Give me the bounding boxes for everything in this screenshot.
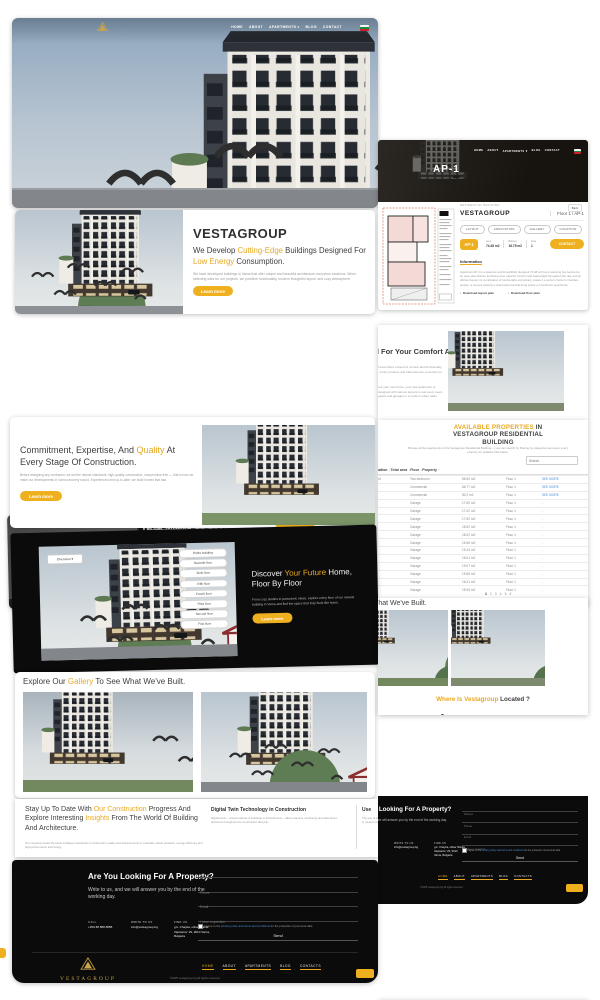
article-body: Digital twins – virtual replicas of buil… — [211, 816, 349, 824]
table-row[interactable]: 2 Shop Commercial 66.77 m2 Floor 1 SEE M… — [378, 483, 588, 491]
bulgarian-flag-icon[interactable] — [360, 25, 369, 31]
column-header[interactable]: Designation↕ — [378, 468, 391, 472]
footer-subtext: Write to us, and we will answer you by t… — [88, 887, 210, 902]
page-number[interactable]: 5 — [505, 592, 507, 596]
page-number[interactable]: 4 — [500, 592, 502, 596]
pin-icon — [441, 714, 444, 715]
footer-nav: HOMEABOUTAPARTMENTSBLOGCONTACTS — [438, 875, 532, 880]
hero-nav: HOMEABOUTAPARTMENTSBLOGCONTACT — [231, 25, 342, 29]
floors-building-image: Overview ▾ Entire buildingSeventh floorS… — [39, 542, 238, 661]
floor-pill[interactable]: Entire building — [179, 548, 227, 558]
table-body: 1 Apartment Two-bedroom 88.50 m2 Floor 1… — [378, 475, 588, 593]
download-icon: ↓ — [508, 291, 510, 295]
floor-pill[interactable]: Fifth floor — [180, 579, 228, 589]
article[interactable]: Digital Twin Technology in Construction … — [211, 807, 349, 824]
properties-subtitle: Browse all the apartments in the Vestagr… — [408, 446, 568, 455]
screenshot-collage: HOMEABOUTAPARTMENTSBLOGCONTACT HOMEABOUT… — [0, 0, 600, 1000]
tab[interactable]: GALLERY — [524, 225, 551, 234]
footer-logo-icon — [79, 957, 97, 970]
article[interactable]: Use The use of innovative materials in m… — [362, 807, 378, 824]
stray-accent — [0, 948, 6, 958]
intro-section: VESTAGROUP We Develop Cutting-Edge Build… — [15, 210, 375, 314]
table-row[interactable]: 6 Parking Garage 17.52 m2 Floor 1 - — [378, 514, 588, 522]
comfort-paragraph: Here, when you choose your own home, you… — [378, 385, 443, 399]
learn-more-button[interactable]: Learn more — [193, 286, 233, 296]
apartment-header: HOMEABOUTAPARTMENTSBLOGCONTACT AP-1 — [378, 140, 588, 202]
floor-plan[interactable] — [381, 206, 457, 306]
comfort-paragraph: Every apartment and level offers a blend… — [378, 365, 443, 379]
table-row[interactable]: 11 Parking Garage 16.61 m2 Floor 1 - — [378, 554, 588, 562]
tab[interactable]: LOCATION — [554, 225, 583, 234]
sort-icon[interactable]: ↕ — [438, 468, 440, 472]
footer-section: Are You Looking For A Property? Write to… — [12, 860, 378, 983]
stat: Balcony 16.75 m2 — [503, 240, 525, 248]
footer-nav-item[interactable]: HOME — [202, 964, 214, 970]
footer-heading: Are You Looking For A Property? — [88, 872, 214, 881]
apartment-page-nav: HOMEABOUTAPARTMENTSBLOGCONTACT — [474, 149, 560, 153]
gallery-image[interactable] — [378, 610, 448, 686]
contact-form: I agree to the privacy policy and terms … — [198, 866, 358, 941]
nav-item[interactable]: CONTACT — [545, 149, 560, 153]
table-row[interactable]: 9 Parking Garage 15.66 m2 Floor 1 - — [378, 538, 588, 546]
footer-heading: Are You Looking For A Property? — [378, 806, 451, 813]
floor-label: Floor 1 / AP-1 — [550, 211, 584, 216]
column-header[interactable]: Property↕ — [422, 468, 440, 472]
floor-pill[interactable]: Third floor — [180, 599, 228, 609]
table-row[interactable]: 1 Apartment Two-bedroom 88.50 m2 Floor 1… — [378, 475, 588, 483]
comfort-building-image — [448, 331, 564, 411]
nav-item[interactable]: HOME — [231, 25, 243, 29]
located-heading: Where Is Vestagroup Located ? — [388, 696, 578, 703]
comfort-section: Created For Your Comfort And Every apart… — [378, 325, 588, 420]
article-title: Use — [362, 807, 378, 813]
news-body: Our company tracks the latest intelligen… — [25, 841, 205, 849]
form-field[interactable] — [462, 837, 578, 847]
floor-selector: Entire buildingSeventh floorSixth floorF… — [179, 548, 229, 631]
floating-action-button[interactable] — [356, 969, 374, 978]
gallery-heading-fragment: To See What We've Built. — [378, 600, 427, 607]
apartment-badge: AP-1 — [460, 239, 478, 250]
properties-table: No↕Type↕Designation↕Total area↕Floor↕Pro… — [378, 466, 588, 593]
table-row[interactable]: 5 Parking Garage 17.02 m2 Floor 1 - — [378, 507, 588, 515]
small-label: RESIDENTIAL BUILDING — [460, 204, 584, 207]
learn-more-button[interactable]: Learn more — [20, 491, 62, 501]
quality-section: Commitment, Expertise, And Quality At Ev… — [10, 417, 375, 528]
table-row[interactable]: 13 Parking Garage 15.68 m2 Floor 1 - — [378, 570, 588, 578]
nav-item[interactable]: HOME — [474, 149, 483, 153]
apartment-info-panel: RESIDENTIAL BUILDING Back VESTAGROUP Flo… — [460, 204, 584, 308]
properties-title: AVAILABLE PROPERTIES IN VESTAGROUP RESID… — [418, 424, 578, 446]
form-field[interactable] — [462, 825, 578, 835]
floors-body: From cozy studios to panoramic views, ex… — [252, 595, 364, 607]
brand-title: VESTAGROUP — [460, 210, 510, 217]
footer-subtext: Write to us, and we will answer you by t… — [378, 818, 464, 823]
tab[interactable]: ANNOTATION — [488, 225, 521, 234]
download-icon: ↓ — [460, 291, 462, 295]
floating-action-button[interactable] — [566, 884, 583, 892]
footer-nav-item[interactable]: CONTACTS — [514, 875, 532, 880]
table-row[interactable]: 8 Parking Garage 18.02 m2 Floor 1 - — [378, 530, 588, 538]
nav-item[interactable]: CONTACT — [323, 25, 342, 29]
send-button[interactable]: Send — [198, 933, 358, 941]
form-field[interactable] — [462, 814, 578, 824]
footer-nav-item[interactable]: BLOG — [499, 875, 508, 880]
gallery-section: Explore Our Gallery To See What We've Bu… — [15, 672, 375, 798]
table-row[interactable]: 10 Parking Garage 15.43 m2 Floor 1 - — [378, 546, 588, 554]
bulgarian-flag-icon[interactable] — [574, 149, 581, 154]
form-field[interactable] — [198, 881, 358, 893]
quality-heading: Commitment, Expertise, And Quality At Ev… — [20, 445, 198, 468]
floor-plan-drawing — [381, 206, 457, 306]
floors-section: Overview ▾ Entire buildingSeventh floorS… — [10, 525, 379, 674]
gallery-image[interactable] — [451, 610, 545, 686]
floor-pill[interactable]: Fourth floor — [180, 589, 228, 599]
floors-heading: Discover Your Future Home, Floor By Floo… — [251, 567, 367, 591]
nav-item[interactable]: BLOG — [532, 149, 541, 153]
contact-form: I agree to the privacy policy and terms … — [462, 802, 578, 862]
page-number[interactable]: 2 — [490, 592, 492, 596]
page-number[interactable]: 6 — [509, 592, 511, 596]
table-row[interactable]: 7 Parking Garage 18.52 m2 Floor 1 - — [378, 522, 588, 530]
contact-column: CALL +359 88 888 8888 — [88, 920, 124, 939]
intro-title: VESTAGROUP — [193, 226, 287, 241]
consent-checkbox[interactable] — [462, 848, 467, 853]
learn-more-button[interactable]: Learn more — [252, 613, 292, 624]
intro-building-image — [15, 210, 183, 314]
gallery-image[interactable] — [23, 692, 193, 792]
search-input[interactable] — [526, 456, 578, 465]
apartment-stats: Area 74.48 m2 Balcony 16.75 m2 Floor 1 — [482, 240, 540, 248]
nav-item[interactable]: APARTMENTS — [269, 25, 299, 29]
brand-logo-icon[interactable] — [96, 21, 109, 32]
intro-body: We have developed buildings in Varna tha… — [193, 272, 369, 282]
footer-nav-item[interactable]: HOME — [438, 875, 448, 880]
gallery-heading: Explore Our Gallery To See What We've Bu… — [23, 677, 185, 686]
footer-nav-item[interactable]: CONTACTS — [300, 964, 321, 970]
table-row[interactable]: 3 Shop Commercial 80.2 m2 Floor 1 SEE MO… — [378, 491, 588, 499]
apartment-title: AP-1 — [433, 164, 460, 175]
address-row: g.k. Chayka, ulitsa 'Nikola Vaptsarov' 2… — [388, 707, 578, 715]
nav-item[interactable]: ABOUT — [249, 25, 263, 29]
table-row[interactable]: 12 Parking Garage 15.07 m2 Floor 1 - — [378, 562, 588, 570]
stat: Area 74.48 m2 — [482, 240, 503, 248]
copyright: ©2025 vestagroup.bg All rights reserved. — [420, 886, 463, 889]
intro-subtitle: We Develop Cutting-Edge Buildings Design… — [193, 246, 369, 267]
form-fields — [462, 802, 578, 846]
consent-checkbox[interactable] — [198, 924, 203, 929]
footer-nav-item[interactable]: APARTMENTS — [471, 875, 493, 880]
floor-pill[interactable]: Seventh floor — [179, 558, 227, 568]
contact-column: WRITE TO US info@vestagroup.bg — [394, 842, 426, 858]
gallery-image[interactable] — [201, 692, 367, 792]
footer-section-right: Are You Looking For A Property? Write to… — [378, 796, 588, 904]
footer-nav-item[interactable]: ABOUT — [223, 964, 236, 970]
floor-pill[interactable]: First floor — [181, 619, 229, 629]
hero-section: HOMEABOUTAPARTMENTSBLOGCONTACT — [12, 18, 378, 208]
divider — [356, 805, 357, 849]
form-field[interactable] — [462, 802, 578, 812]
footer-nav-item[interactable]: ABOUT — [454, 875, 465, 880]
nav-item[interactable]: ABOUT — [487, 149, 498, 153]
form-field[interactable] — [198, 866, 358, 878]
quality-body: Before assigning any contractor, we set … — [20, 473, 196, 483]
floor-pill[interactable]: Second floor — [180, 609, 228, 619]
nav-item[interactable]: APARTMENTS — [503, 149, 528, 153]
tab[interactable]: LAYOUT — [460, 225, 485, 234]
send-button[interactable]: Send — [462, 856, 578, 863]
quality-building-image — [202, 425, 375, 525]
page-number[interactable]: 3 — [495, 592, 497, 596]
footer-nav-item[interactable]: BLOG — [280, 964, 291, 970]
footer-contacts: CALL +359 88 888 8888 WRITE TO US info@v… — [88, 920, 210, 939]
view-dropdown[interactable]: Overview ▾ — [47, 554, 83, 565]
footer-nav-item[interactable]: APARTMENTS — [245, 964, 271, 970]
apartment-tabs: LAYOUTANNOTATIONGALLERYLOCATION — [460, 225, 584, 234]
form-field[interactable] — [198, 910, 358, 922]
news-heading: Stay Up To Date With Our Construction Pr… — [25, 805, 205, 833]
page-number[interactable]: 1 — [485, 592, 487, 596]
floor-pill[interactable]: Sixth floor — [179, 569, 227, 579]
download-link[interactable]: ↓Download floor plan — [508, 291, 540, 295]
contact-column: WRITE TO US info@vestagroup.bg — [131, 920, 167, 939]
form-fields — [198, 866, 358, 922]
hero-building-illustration — [12, 18, 378, 208]
article-body: The use of innovative materials in moder… — [362, 816, 378, 824]
apartment-detail-page: HOMEABOUTAPARTMENTSBLOGCONTACT AP-1 — [378, 140, 588, 310]
footer-nav: HOMEABOUTAPARTMENTSBLOGCONTACTS — [202, 964, 321, 970]
privacy-link[interactable]: privacy policy and terms and conditions — [221, 924, 270, 928]
footer-contacts: CALL +359 88 888 8888 WRITE TO US info@v… — [378, 842, 466, 858]
hero-nav-overlay — [12, 18, 378, 44]
copyright: ©2025 vestagroup.bg All rights reserved. — [12, 976, 378, 980]
contact-button[interactable]: CONTACT — [550, 239, 584, 249]
properties-section: AVAILABLE PROPERTIES IN VESTAGROUP RESID… — [378, 420, 588, 606]
column-header[interactable]: Floor↕ — [410, 468, 422, 472]
built-located-section: To See What We've Built. Where Is Vestag… — [378, 598, 588, 715]
nav-item[interactable]: BLOG — [305, 25, 316, 29]
privacy-link[interactable]: privacy policy and terms and conditions — [482, 849, 524, 852]
stat: Floor 1 — [526, 240, 540, 248]
article-title: Digital Twin Technology in Construction — [211, 807, 349, 813]
information-heading: Information — [460, 259, 482, 266]
information-text: Apartment AP-1 is a spacious and thought… — [460, 270, 582, 287]
table-row[interactable]: 4 Parking Garage 17.60 m2 Floor 1 - — [378, 499, 588, 507]
back-button[interactable]: Back — [568, 204, 582, 212]
contact-column: CALL +359 88 888 8888 — [378, 842, 386, 858]
news-section: Stay Up To Date With Our Construction Pr… — [15, 799, 378, 857]
table-header-row: No↕Type↕Designation↕Total area↕Floor↕Pro… — [378, 466, 588, 475]
download-link[interactable]: ↓Download layout plan — [460, 291, 494, 295]
form-field[interactable] — [198, 895, 358, 907]
column-header[interactable]: Total area↕ — [391, 468, 411, 472]
